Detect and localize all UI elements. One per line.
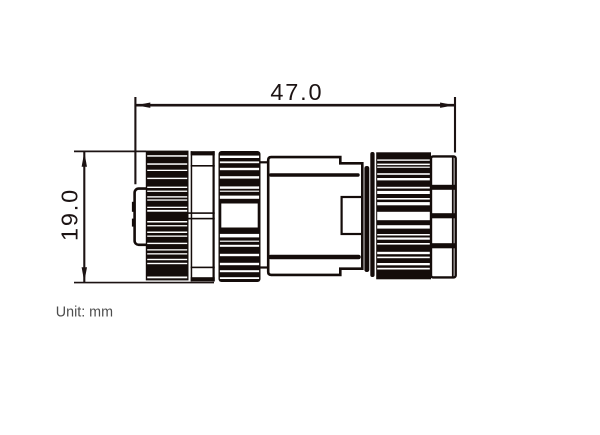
svg-text:47.0: 47.0 — [270, 79, 323, 105]
svg-text:19.0: 19.0 — [57, 188, 83, 241]
svg-text:Unit: mm: Unit: mm — [56, 305, 113, 321]
